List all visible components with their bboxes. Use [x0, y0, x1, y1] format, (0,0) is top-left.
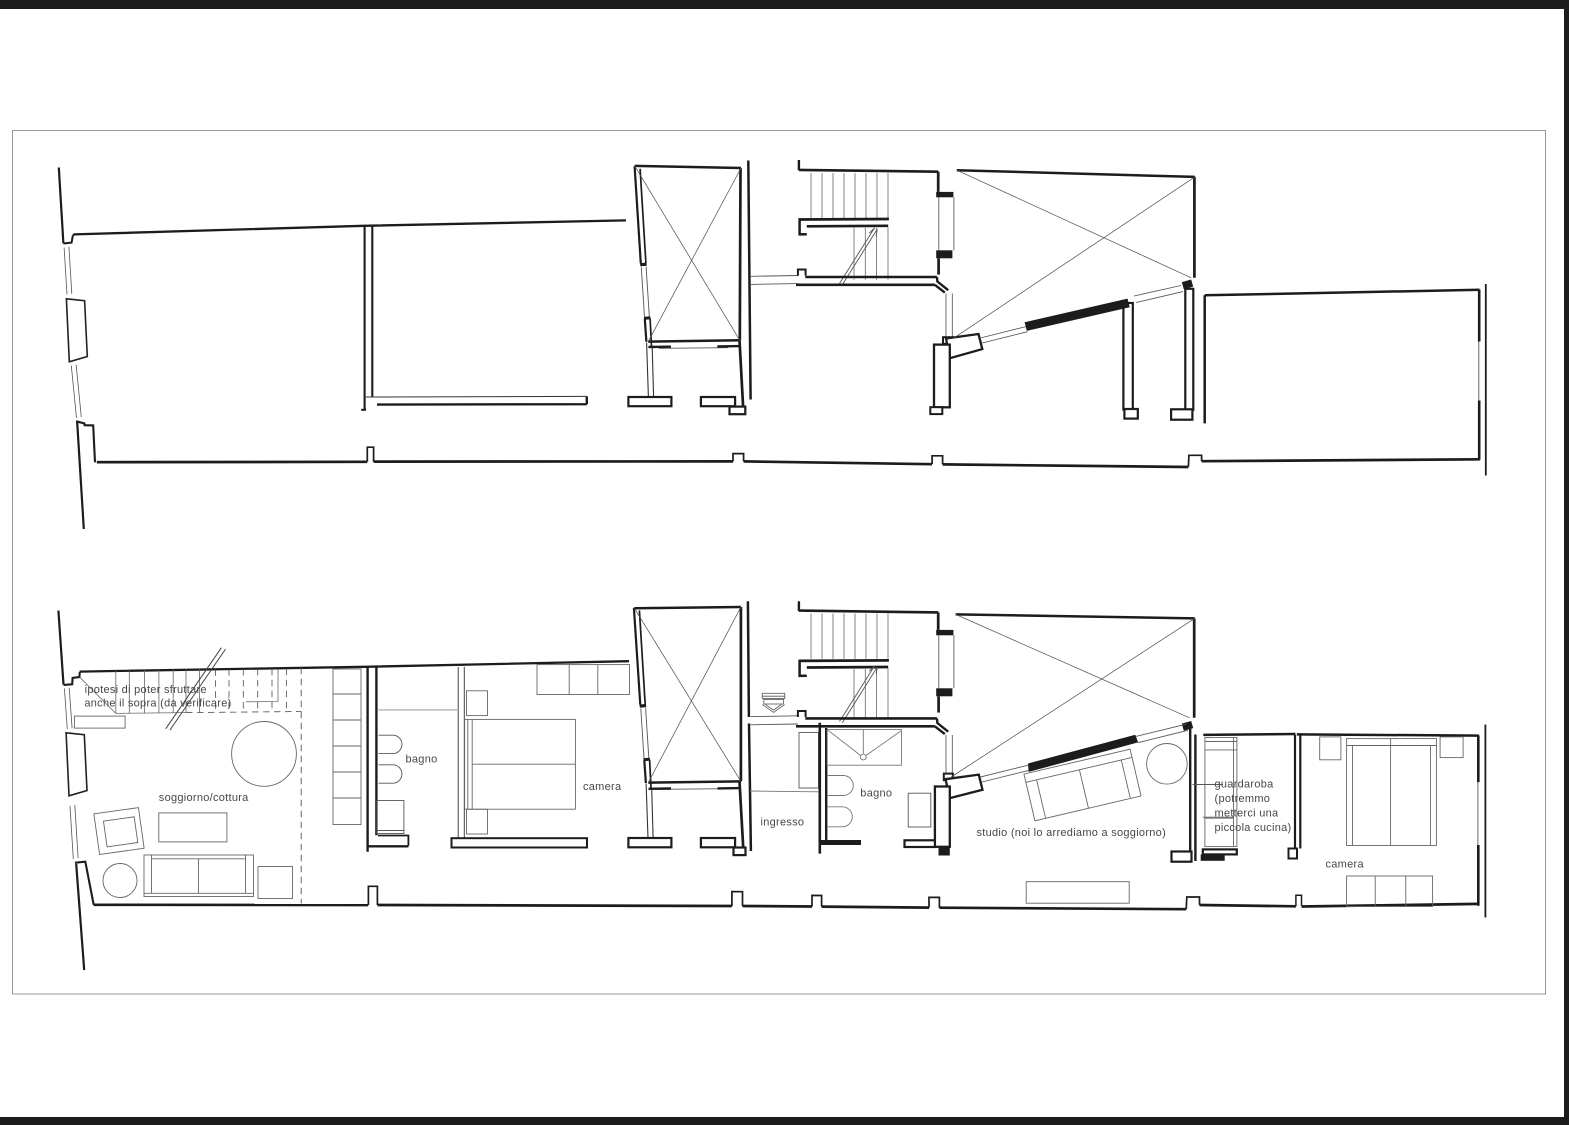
svg-text:bagno: bagno [860, 787, 892, 799]
svg-text:metterci una: metterci una [1215, 808, 1279, 820]
svg-text:studio (noi lo arrediamo a sog: studio (noi lo arrediamo a soggiorno) [977, 827, 1167, 839]
svg-text:ingresso: ingresso [761, 817, 805, 829]
svg-text:bagno: bagno [406, 753, 438, 765]
svg-text:(potremmo: (potremmo [1215, 793, 1271, 805]
svg-text:anche il sopra (da verificare): anche il sopra (da verificare) [84, 698, 231, 710]
svg-text:soggiorno/cottura: soggiorno/cottura [159, 792, 249, 804]
svg-text:camera: camera [583, 781, 622, 793]
svg-text:guardaroba: guardaroba [1215, 778, 1275, 790]
svg-text:camera: camera [1326, 858, 1365, 870]
svg-text:piccola cucina): piccola cucina) [1215, 822, 1292, 834]
svg-text:ipotesi di poter sfruttare: ipotesi di poter sfruttare [85, 684, 207, 696]
